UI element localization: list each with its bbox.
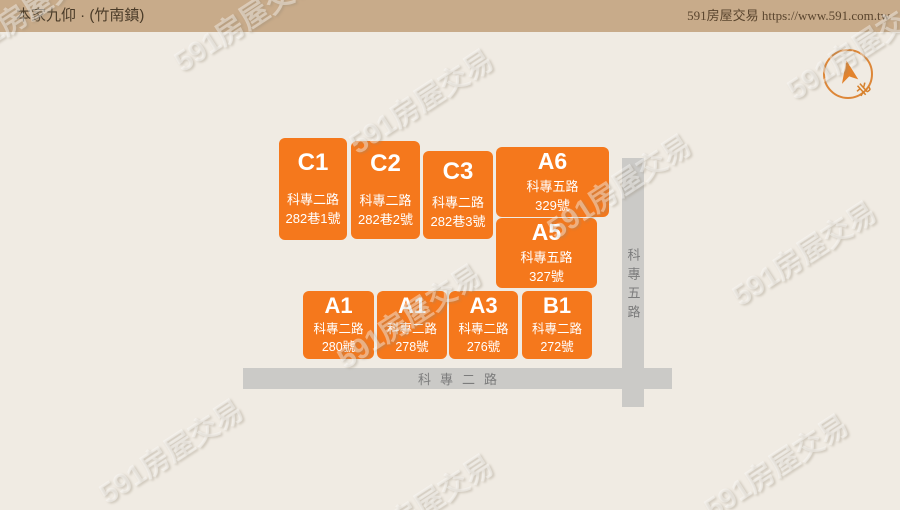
road-horizontal: 科專二路: [243, 368, 672, 389]
block-address: 科專二路 278號: [387, 320, 437, 356]
road-label-horizontal: 科專二路: [418, 369, 506, 388]
building-block-a5[interactable]: A5 科專五路 327號: [496, 218, 597, 288]
building-block-a6[interactable]: A6 科專五路 329號: [496, 147, 609, 217]
building-block-a1-278[interactable]: A1 科專二路 278號: [377, 291, 447, 359]
block-id: A1: [398, 294, 426, 318]
block-id: C2: [370, 151, 401, 177]
watermark-text: 591房屋交易: [90, 388, 251, 510]
site-branding: 591房屋交易 https://www.591.com.tw: [687, 0, 890, 32]
block-address: 科專二路 282巷2號: [358, 191, 413, 229]
block-address: 科專二路 276號: [458, 320, 508, 356]
building-block-c3[interactable]: C3 科專二路 282巷3號: [423, 151, 493, 239]
block-id: A5: [532, 220, 561, 245]
block-address: 科專二路 280號: [313, 320, 363, 356]
building-block-b1[interactable]: B1 科專二路 272號: [522, 291, 592, 359]
block-id: B1: [543, 294, 571, 318]
road-vertical: 科專五路: [622, 158, 644, 407]
block-address: 科專五路 327號: [520, 248, 572, 286]
page-title: 本家九仰 · (竹南鎮): [16, 0, 144, 32]
building-block-c2[interactable]: C2 科專二路 282巷2號: [351, 141, 420, 239]
building-block-c1[interactable]: C1 科專二路 282巷1號: [279, 138, 347, 240]
block-id: A1: [324, 294, 352, 318]
building-block-a3[interactable]: A3 科專二路 276號: [449, 291, 518, 359]
block-address: 科專二路 282巷1號: [286, 190, 341, 228]
site-map-page: 本家九仰 · (竹南鎮) 591房屋交易 https://www.591.com…: [0, 0, 900, 510]
block-id: A6: [538, 149, 567, 174]
block-address: 科專二路 272號: [532, 320, 582, 356]
header-bar: 本家九仰 · (竹南鎮) 591房屋交易 https://www.591.com…: [0, 0, 900, 32]
block-address: 科專二路 282巷3號: [431, 193, 486, 231]
block-id: C3: [443, 159, 474, 185]
watermark-text: 591房屋交易: [723, 190, 884, 315]
watermark-text: 591房屋交易: [695, 403, 856, 510]
road-label-vertical: 科專五路: [624, 248, 643, 324]
block-id: A3: [469, 294, 497, 318]
building-block-a1-280[interactable]: A1 科專二路 280號: [303, 291, 374, 359]
compass: 北: [823, 49, 873, 99]
block-address: 科專五路 329號: [526, 177, 578, 215]
block-id: C1: [298, 150, 329, 176]
watermark-text: 591房屋交易: [340, 443, 501, 510]
